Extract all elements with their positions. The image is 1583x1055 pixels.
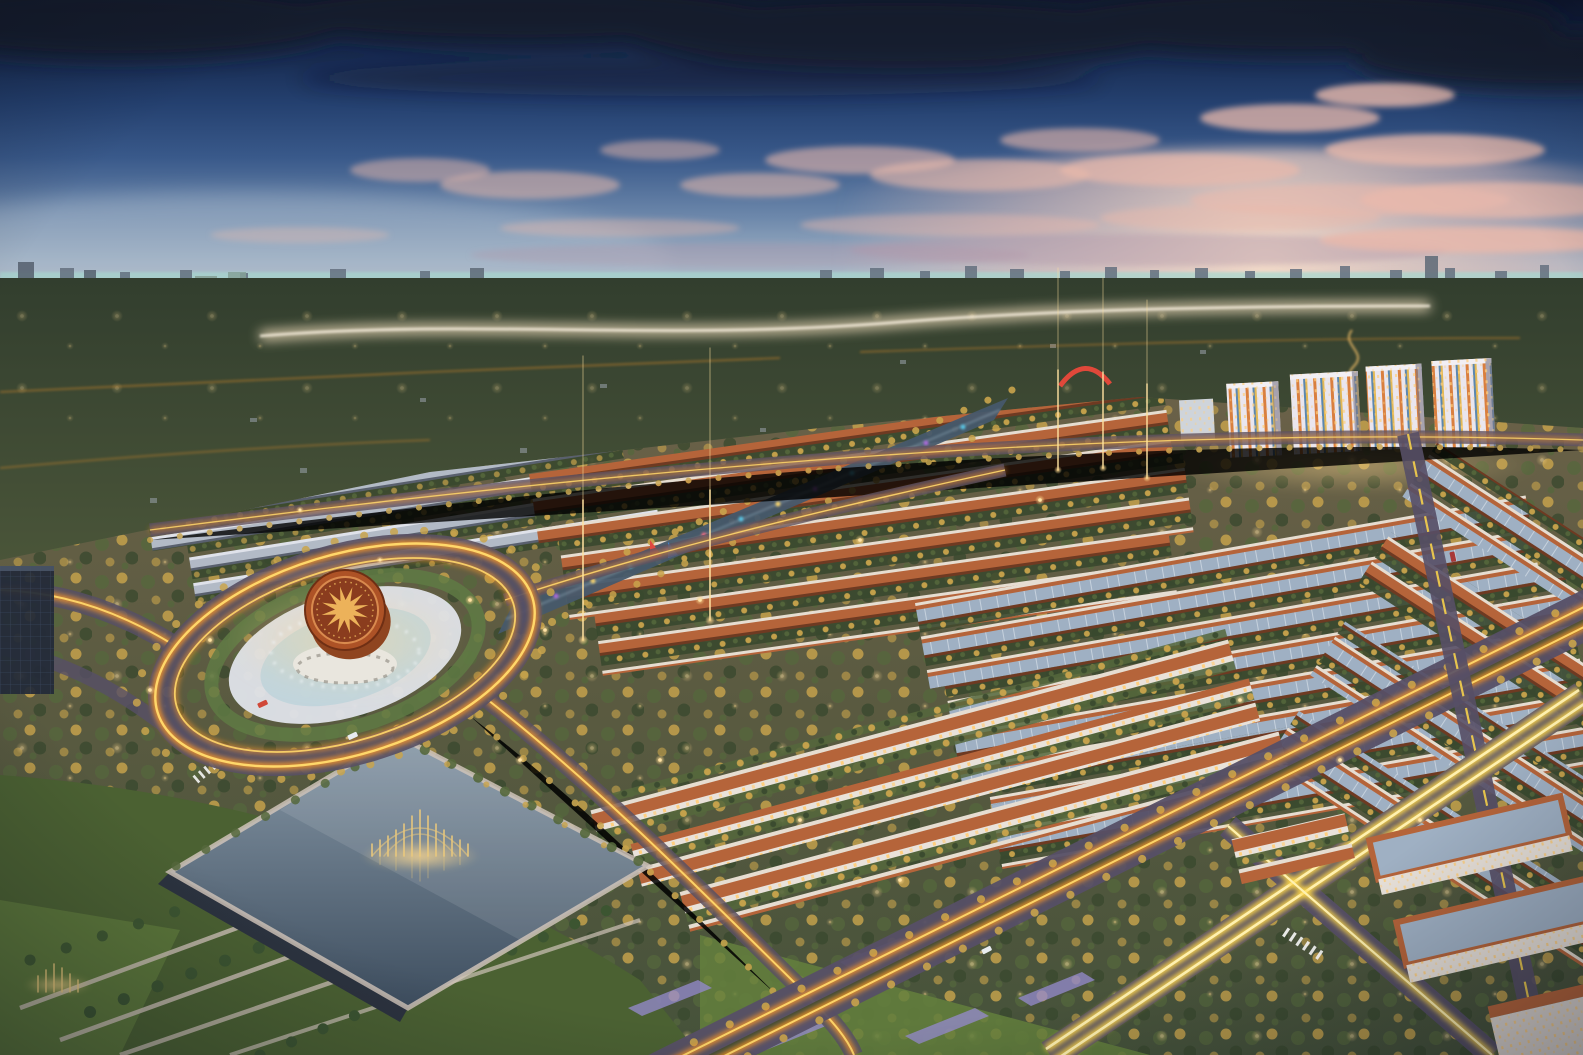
aerial-render-image: Aerial dusk rendering of a master-planne… xyxy=(0,0,1583,1055)
glass-building xyxy=(0,566,54,694)
apartment-slab xyxy=(1226,381,1282,458)
township-render-canvas: Aerial dusk rendering of a master-planne… xyxy=(0,0,1583,1055)
